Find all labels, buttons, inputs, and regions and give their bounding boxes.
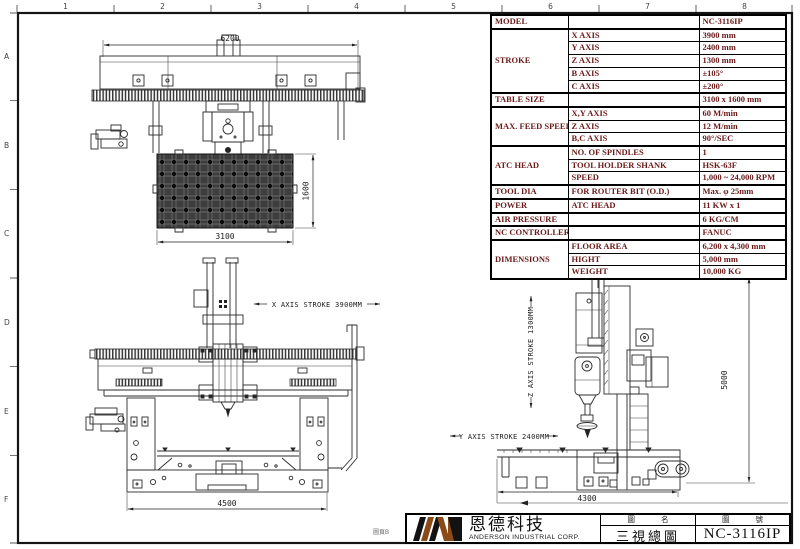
company-name-en: ANDERSON INDUSTRIAL CORP.: [469, 534, 580, 541]
spec-row-sublabel: C AXIS: [568, 80, 699, 93]
title-block-company-cell: 恩德科技 ANDERSON INDUSTRIAL CORP.: [407, 515, 601, 542]
side-view: Z AXIS STROKE 1300MM: [450, 250, 788, 506]
spec-row-value: 90°/SEC: [699, 133, 786, 146]
spec-row-sublabel: B AXIS: [568, 67, 699, 80]
spec-row-sublabel: B,C AXIS: [568, 133, 699, 146]
spec-row-value: NC-3116IP: [699, 15, 786, 29]
border-row-label: F: [4, 495, 8, 504]
border-col-label: 2: [160, 2, 165, 11]
spec-row-sublabel: NO. OF SPINDLES: [568, 146, 699, 159]
spec-row-sublabel: [568, 15, 699, 29]
spec-row-sublabel: TOOL HOLDER SHANK: [568, 159, 699, 172]
spec-row-sublabel: [568, 213, 699, 227]
spec-row-sublabel: [568, 93, 699, 107]
drawing-number-cell: 圖 號 NC-3116IP: [696, 515, 789, 542]
spec-row-value: Max. φ 25mm: [699, 185, 786, 199]
spec-row-label: MODEL: [491, 15, 568, 29]
spec-row-value: 6,200 x 4,300 mm: [699, 240, 786, 253]
border-col-label: 4: [354, 2, 359, 11]
side-dim-height: 5000: [720, 370, 729, 389]
spec-row-sublabel: [568, 226, 699, 240]
side-spindle-head: [575, 357, 600, 437]
spec-row-sublabel: Y AXIS: [568, 42, 699, 55]
spec-row-value: ±200°: [699, 80, 786, 93]
border-col-label: 3: [257, 2, 262, 11]
side-y-stroke-label: Y AXIS STROKE 2400MM: [459, 433, 549, 441]
gantry-rack-front: [95, 349, 356, 359]
drawing-number-value: NC-3116IP: [696, 526, 789, 543]
spec-row-sublabel: WEIGHT: [568, 266, 699, 279]
spec-row-value: 5,000 mm: [699, 253, 786, 266]
plan-carriage: [203, 101, 253, 158]
spec-row-sublabel: FLOOR AREA: [568, 240, 699, 253]
spec-row-value: HSK-63F: [699, 159, 786, 172]
spec-row-value: 1,000 ~ 24,000 RPM: [699, 172, 786, 185]
spec-row-value: 1300 mm: [699, 55, 786, 68]
spec-row-sublabel: ATC HEAD: [568, 199, 699, 213]
border-col-label: 1: [63, 2, 68, 11]
spec-row-value: ±105°: [699, 67, 786, 80]
spec-row-value: 60 M/min: [699, 107, 786, 120]
side-dim-base: 4300: [577, 494, 596, 503]
drawing-name-header: 圖 名: [601, 515, 695, 526]
drawing-name-cell: 圖 名 三視總圖: [601, 515, 696, 542]
spec-row-label: STROKE: [491, 29, 568, 94]
plan-dim-table-width: 3100: [215, 232, 234, 241]
border-row-label: D: [4, 318, 10, 327]
front-base: [127, 470, 328, 492]
border-row-label: E: [4, 407, 9, 416]
company-name-cn: 恩德科技: [469, 516, 580, 534]
spec-row-label: TOOL DIA: [491, 185, 568, 199]
border-row-label: C: [4, 229, 9, 238]
spec-row-value: 1: [699, 146, 786, 159]
spec-row-sublabel: X AXIS: [568, 29, 699, 42]
spec-row-label: DIMENSIONS: [491, 240, 568, 279]
spec-row-label: NC CONTROLLER: [491, 226, 568, 240]
front-bc-motor: [86, 408, 125, 432]
border-col-label: 5: [451, 2, 456, 11]
spec-row-sublabel: FOR ROUTER BIT (O.D.): [568, 185, 699, 199]
border-row-label: A: [4, 52, 9, 61]
spec-row-value: 12 M/min: [699, 120, 786, 133]
spec-row-value: 2400 mm: [699, 42, 786, 55]
spec-table-body: MODELNC-3116IPSTROKEX AXIS3900 mmY AXIS2…: [491, 15, 786, 279]
border-col-label: 6: [548, 2, 553, 11]
drawing-number-header: 圖 號: [696, 515, 789, 526]
drawing-sheet: { "border": { "cols": ["1","2","3","4","…: [0, 0, 800, 549]
spec-row-label: POWER: [491, 199, 568, 213]
spec-row-sublabel: Z AXIS: [568, 55, 699, 68]
spec-row-sublabel: Z AXIS: [568, 120, 699, 133]
spec-row-value: 3100 x 1600 mm: [699, 93, 786, 107]
plan-left-motor: [91, 125, 128, 149]
spec-row-label: TABLE SIZE: [491, 93, 568, 107]
spec-row-sublabel: X,Y AXIS: [568, 107, 699, 120]
spec-row-value: FANUC: [699, 226, 786, 240]
spec-row-sublabel: SPEED: [568, 172, 699, 185]
spec-row-value: 11 KW x 1: [699, 199, 786, 213]
spec-row-label: ATC HEAD: [491, 146, 568, 185]
spec-row-label: MAX. FEED SPEED: [491, 107, 568, 146]
spec-row-value: 6 KG/CM: [699, 213, 786, 227]
spec-row-label: AIR PRESSURE: [491, 213, 568, 227]
border-col-label: 7: [645, 2, 650, 11]
front-x-stroke-label: X AXIS STROKE 3900MM: [272, 301, 362, 309]
title-block: 恩德科技 ANDERSON INDUSTRIAL CORP. 圖 名 三視總圖 …: [405, 513, 791, 544]
front-dim-base: 4500: [217, 499, 236, 508]
front-view: X AXIS STROKE 3900MM: [86, 258, 380, 511]
plan-view: 6200: [91, 34, 365, 245]
anderson-logo: [412, 516, 464, 542]
border-row-label: B: [4, 141, 9, 150]
page-label: 圖頁B: [373, 527, 389, 536]
gantry-rack-plan: [92, 90, 364, 101]
drawing-name-value: 三視總圖: [601, 526, 695, 545]
spec-table: MODELNC-3116IPSTROKEX AXIS3900 mmY AXIS2…: [490, 14, 787, 280]
border-col-label: 8: [742, 2, 747, 11]
spec-row-value: 3900 mm: [699, 29, 786, 42]
plan-dim-table-height: 1600: [302, 181, 311, 200]
work-table-plan: [157, 154, 293, 228]
side-z-stroke-label: Z AXIS STROKE 1300MM: [527, 307, 535, 397]
spec-row-value: 10,000 KG: [699, 266, 786, 279]
spec-row-sublabel: HIGHT: [568, 253, 699, 266]
